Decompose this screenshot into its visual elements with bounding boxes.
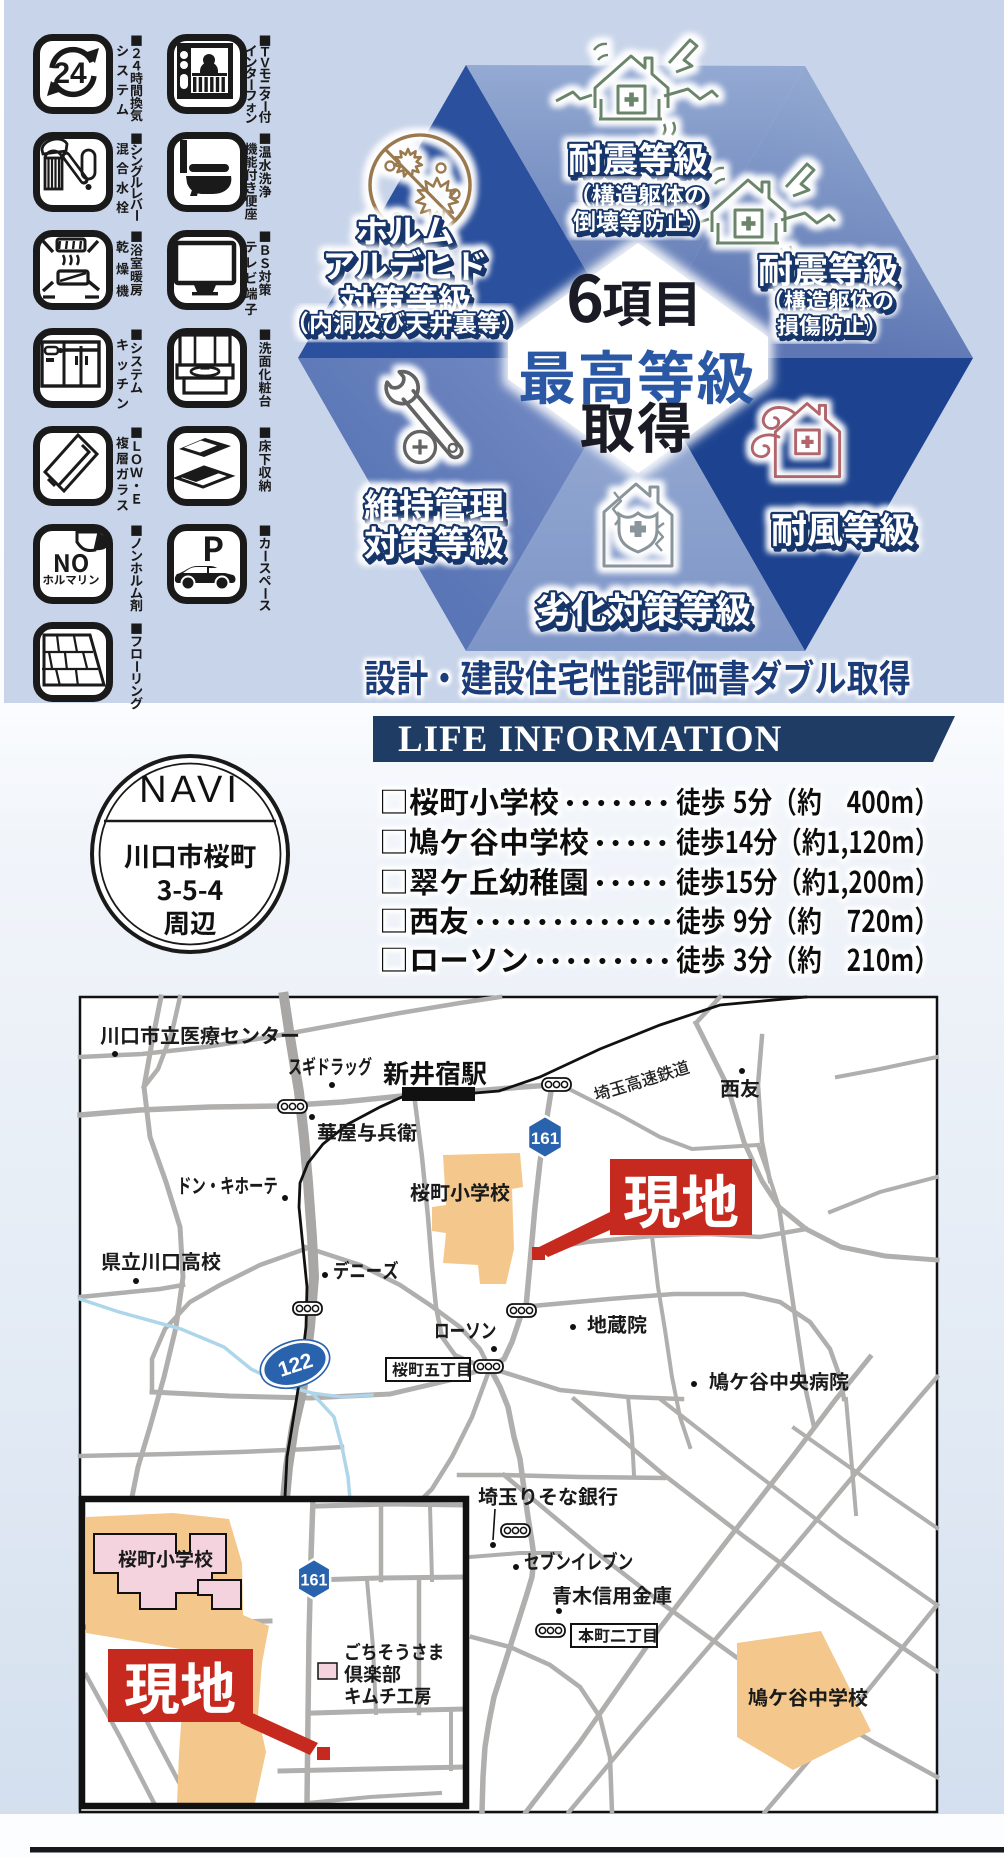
- svg-text:24: 24: [53, 57, 87, 90]
- svg-text:LIFE INFORMATION: LIFE INFORMATION: [398, 719, 782, 760]
- svg-text:NAVI: NAVI: [139, 769, 241, 811]
- svg-text:161: 161: [301, 1572, 328, 1590]
- svg-text:161: 161: [531, 1129, 559, 1148]
